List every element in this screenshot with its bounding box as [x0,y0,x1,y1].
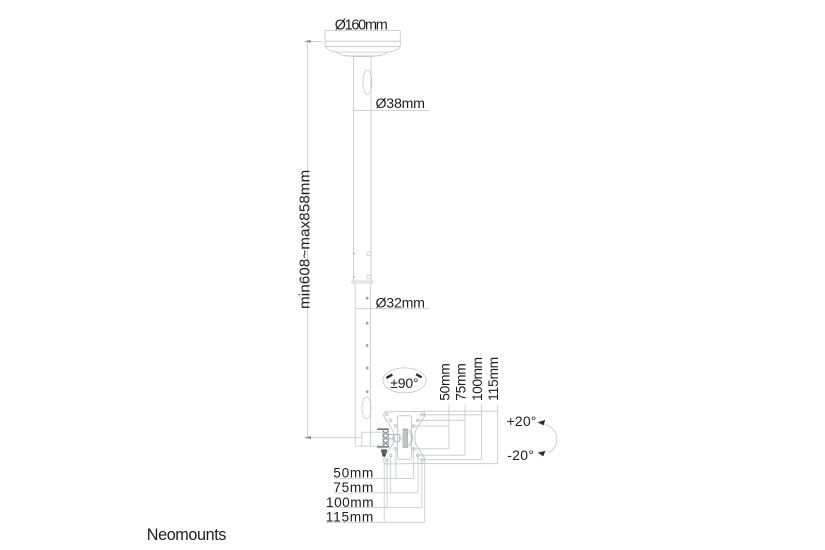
svg-text:75mm: 75mm [333,480,373,495]
svg-text:100mm: 100mm [470,357,485,401]
svg-text:115mm: 115mm [486,357,501,401]
svg-text:50mm: 50mm [437,363,452,401]
svg-text:100mm: 100mm [326,495,374,510]
svg-text:50mm: 50mm [333,465,373,480]
svg-text:min608~max858mm: min608~max858mm [297,170,314,309]
svg-text:±90°: ±90° [390,375,418,391]
svg-text:-20°: -20° [507,447,534,463]
svg-text:Neomounts: Neomounts [147,526,227,544]
svg-text:+20°: +20° [507,413,537,429]
svg-text:Ø32mm: Ø32mm [376,295,426,311]
svg-text:Ø160mm: Ø160mm [335,17,388,33]
svg-text:Ø38mm: Ø38mm [376,96,426,112]
svg-text:115mm: 115mm [326,510,374,525]
svg-text:75mm: 75mm [454,363,469,401]
